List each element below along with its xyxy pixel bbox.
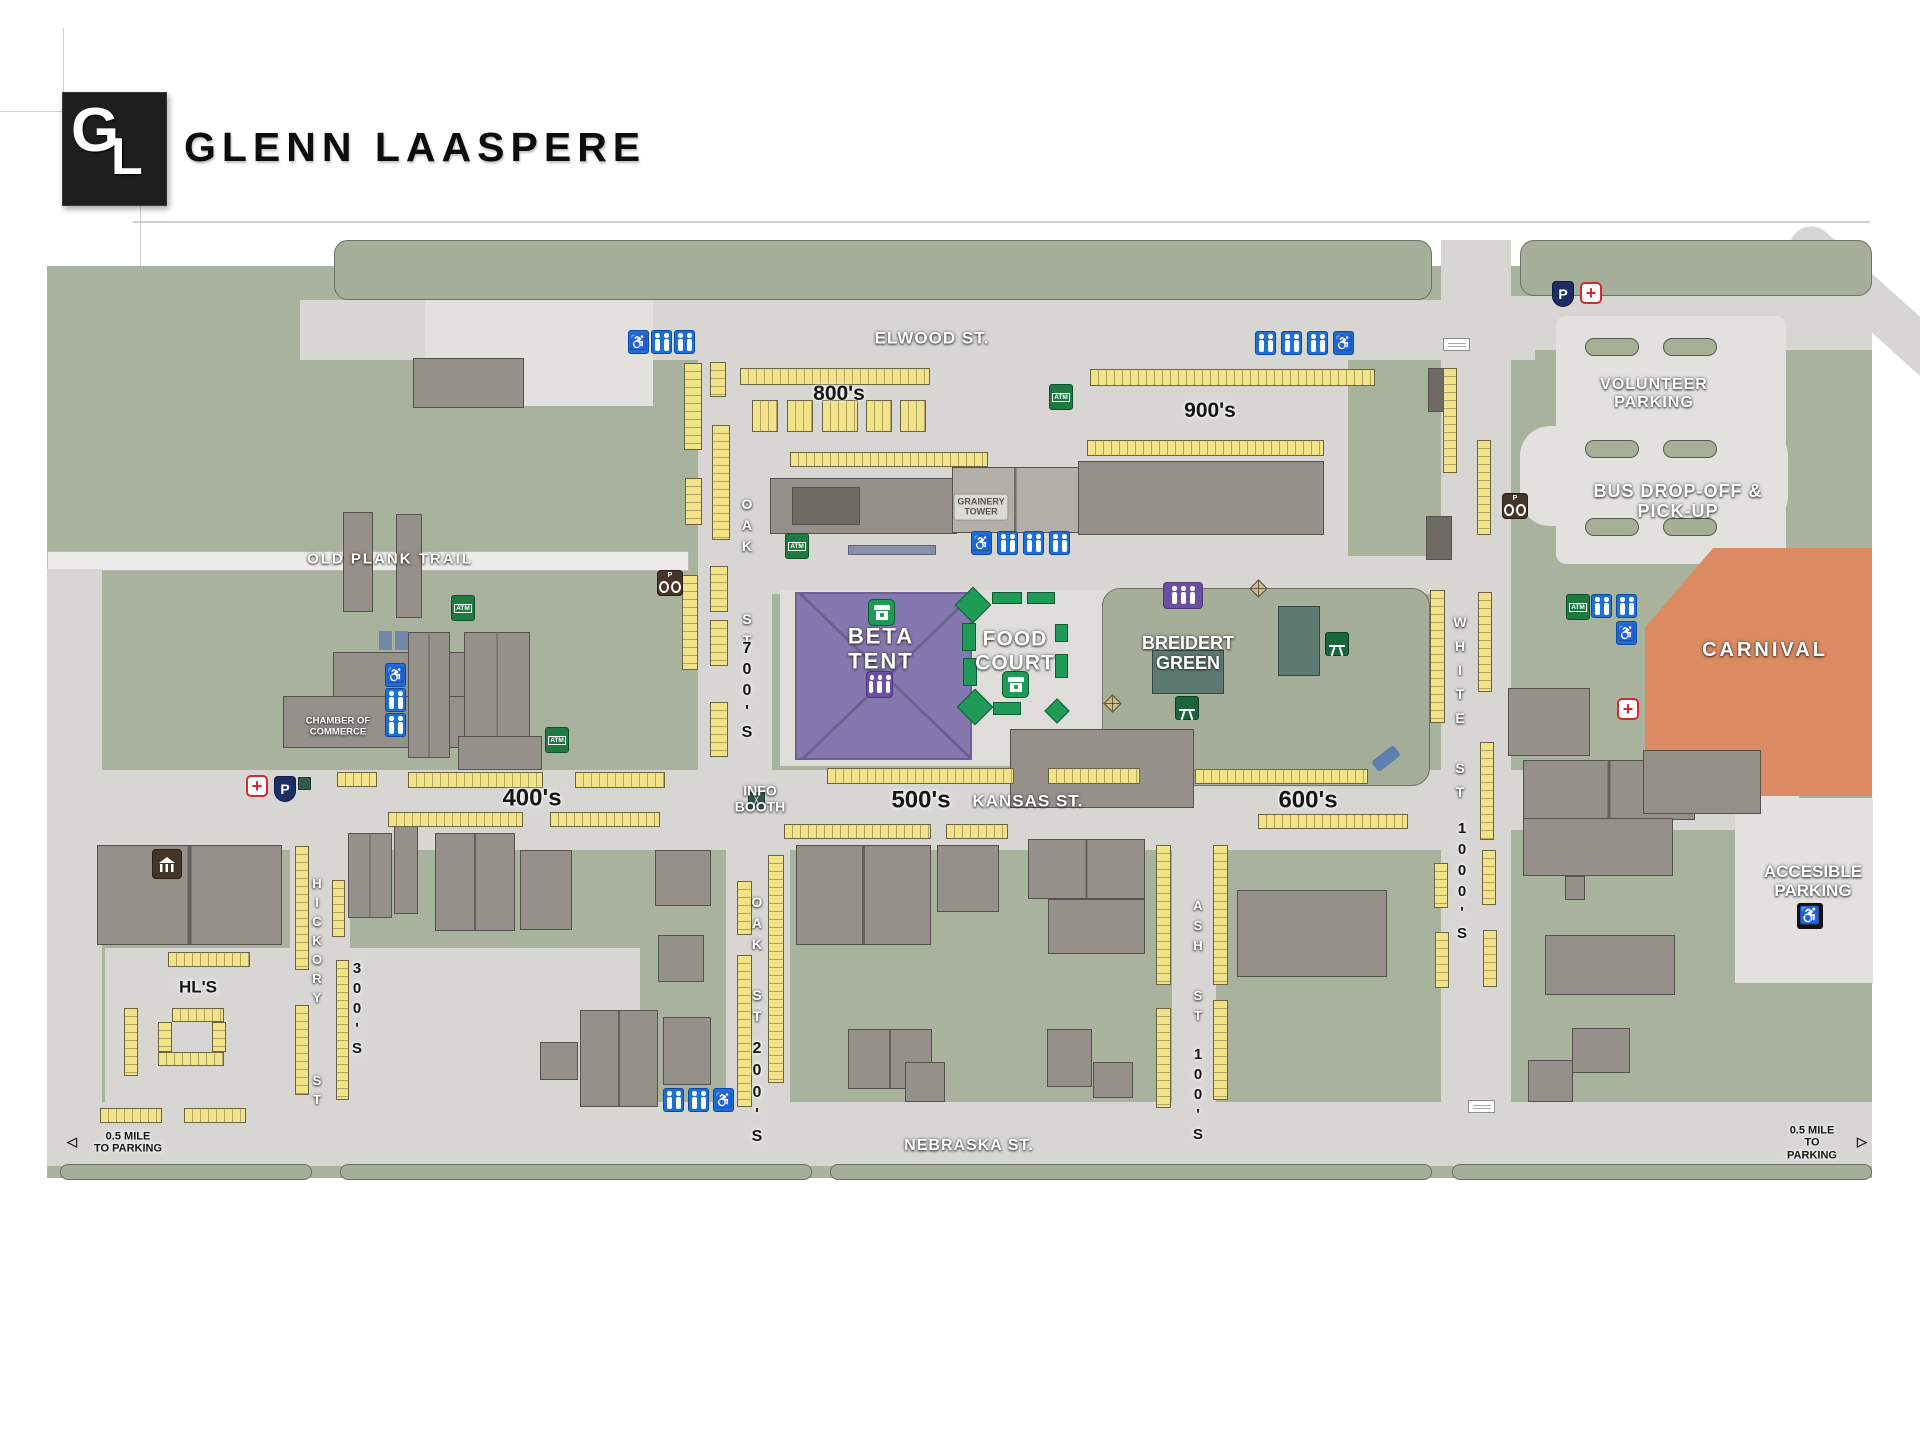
parking-island xyxy=(1585,440,1639,458)
building xyxy=(663,1017,711,1085)
building xyxy=(1426,516,1452,560)
vendor-booth-row xyxy=(710,566,728,612)
building xyxy=(1643,750,1761,814)
restroom-icon xyxy=(1049,531,1070,555)
parking-icon: P xyxy=(274,776,296,802)
direction-arrow-left: ◁ xyxy=(64,1134,80,1150)
marker-square xyxy=(298,777,311,790)
vendor-booth-row xyxy=(784,824,931,839)
vendor-booth-row xyxy=(337,772,377,787)
vendor-booth-row xyxy=(158,1022,172,1052)
vendor-booth-row xyxy=(712,425,730,540)
building xyxy=(1028,839,1145,899)
map-sign xyxy=(1468,1100,1495,1113)
atm-icon: ATM xyxy=(451,595,475,621)
building xyxy=(1523,818,1673,876)
vendor-booth-row xyxy=(1087,440,1324,456)
vendor-booth-row xyxy=(737,881,752,935)
restroom-icon xyxy=(1591,594,1612,618)
parking-island xyxy=(1585,338,1639,356)
breidert-green-label: BREIDERT GREEN xyxy=(1142,633,1234,673)
parking-icon: P xyxy=(1552,281,1574,307)
building xyxy=(348,833,392,918)
building xyxy=(1565,876,1585,900)
kansas-st-label: KANSAS ST. xyxy=(972,791,1083,810)
vendor-booth-row xyxy=(158,1052,224,1066)
vendor-booth-row xyxy=(682,575,698,670)
vendor-booth-row xyxy=(295,846,309,970)
carnival-label: CARNIVAL xyxy=(1702,639,1828,661)
restroom-icon xyxy=(1616,594,1637,618)
atm-icon: ATM xyxy=(785,533,809,559)
vendor-booth-row xyxy=(684,363,702,450)
vendor-booth-row xyxy=(1478,592,1492,692)
building xyxy=(1048,899,1145,954)
food-stall xyxy=(962,623,976,651)
building xyxy=(580,1010,658,1107)
picnic-area-icon xyxy=(1175,696,1199,720)
vendor-booth-row xyxy=(172,1008,224,1022)
accessible-icon: ♿ xyxy=(1616,621,1637,645)
vendor-booth-row xyxy=(710,362,726,397)
accessible-icon: ♿ xyxy=(628,330,649,354)
south-edge-green-3 xyxy=(830,1164,1432,1180)
vendor-stand-icon xyxy=(1002,671,1029,698)
logo-drop-line xyxy=(140,204,141,266)
mile-to-parking-right-label: 0.5 MILE TO PARKING xyxy=(1782,1125,1842,1162)
section-700s-label: 700'S xyxy=(742,640,753,745)
atm-icon: ATM xyxy=(1049,384,1073,410)
building xyxy=(1237,890,1387,977)
first-aid-icon: + xyxy=(1617,698,1639,720)
vendor-booth-row xyxy=(1482,850,1496,905)
building xyxy=(1545,935,1675,995)
vendor-booth-row xyxy=(900,400,926,432)
section-200s-label: 200'S xyxy=(752,1040,763,1150)
museum-icon xyxy=(152,849,182,879)
blue-markers xyxy=(379,631,408,650)
direction-arrow-right: ▷ xyxy=(1854,1134,1870,1150)
vendor-booth-row xyxy=(1156,1008,1171,1108)
bike-parking-icon: P xyxy=(1502,493,1528,519)
food-stall xyxy=(992,592,1022,604)
page-title: GLENN LAASPERE xyxy=(184,124,646,171)
section-1000s-label: 1000'S xyxy=(1457,820,1467,946)
food-stall xyxy=(1027,592,1055,604)
logo: G L xyxy=(62,92,167,206)
beta-tent-label: BETA TENT xyxy=(848,624,914,673)
bus-drop-off-label: BUS DROP-OFF & PICK-UP xyxy=(1581,481,1775,521)
vendor-booth-row xyxy=(1090,369,1375,386)
restroom-icon xyxy=(663,1088,684,1112)
section-800s-label: 800's xyxy=(813,382,865,406)
crop-mark-vertical xyxy=(63,28,64,92)
vendor-booth-row xyxy=(787,400,813,432)
restroom-icon xyxy=(1255,331,1276,355)
first-aid-icon: + xyxy=(246,775,268,797)
building xyxy=(905,1062,945,1102)
section-100s-label: 100'S xyxy=(1193,1046,1203,1146)
restroom-icon xyxy=(674,330,695,354)
restroom-icon xyxy=(688,1088,709,1112)
accessible-icon: ♿ xyxy=(1333,331,1354,355)
atm-icon: ATM xyxy=(545,727,569,753)
vendor-booth-row xyxy=(575,772,665,788)
vendor-booth-row xyxy=(1048,768,1140,784)
vendor-booth-row xyxy=(752,400,778,432)
accessible-parking-icon: ♿ xyxy=(1797,903,1823,929)
vendor-booth-row xyxy=(768,855,784,1083)
vendor-booth-row xyxy=(1434,863,1448,908)
oak-st-south-label: OAKST xyxy=(752,894,763,1029)
vendor-booth-row xyxy=(336,960,349,1100)
left-edge-road xyxy=(47,569,102,1166)
vendor-booth-row xyxy=(1213,845,1228,985)
accessible-icon: ♿ xyxy=(385,663,406,687)
map-sign xyxy=(1443,338,1470,351)
tables-row xyxy=(848,545,936,555)
info-booth-label: INFO BOOTH xyxy=(735,783,786,814)
festival-map: ♿♿♿♿♿ATM♿ATMATMATMATM+++PPPP╳♿◁▷ELWOOD S… xyxy=(47,266,1872,1178)
elwood-st-label: ELWOOD ST. xyxy=(875,328,990,347)
vendor-booth-row xyxy=(100,1108,162,1123)
building xyxy=(796,845,931,945)
hls-label: HL'S xyxy=(179,977,217,996)
vendor-booth-row xyxy=(710,702,728,757)
restroom-icon xyxy=(1307,331,1328,355)
vendor-booth-row xyxy=(1156,845,1171,985)
vendor-booth-row xyxy=(1435,932,1449,988)
section-500s-label: 500's xyxy=(891,788,950,815)
vendor-booth-row xyxy=(827,768,1014,784)
vendor-booth-row xyxy=(295,1005,309,1095)
vendor-booth-row xyxy=(168,952,250,967)
vendor-booth-row xyxy=(1480,742,1494,840)
food-court-label: FOOD COURT xyxy=(975,627,1055,674)
vendor-booth-row xyxy=(1195,769,1368,784)
building xyxy=(394,824,418,914)
performers-icon xyxy=(1163,582,1203,609)
vendor-booth-row xyxy=(1477,440,1491,535)
building xyxy=(1528,1060,1573,1102)
section-900s-label: 900's xyxy=(1184,399,1236,423)
nebraska-st-label: NEBRASKA ST. xyxy=(904,1137,1034,1155)
bike-parking-icon: P xyxy=(657,570,683,596)
vendor-booth-row xyxy=(388,812,523,827)
vendor-booth-row xyxy=(685,478,702,525)
vendor-booth-row xyxy=(1483,930,1497,987)
building xyxy=(937,845,999,912)
building xyxy=(520,850,572,930)
old-plank-trail-label: OLD PLANK TRAIL xyxy=(307,552,473,569)
accessible-parking-label: ACCESIBLE PARKING xyxy=(1764,862,1862,900)
vendor-booth-row xyxy=(1213,1000,1228,1100)
vendor-booth-row xyxy=(124,1008,138,1076)
vendor-booth-row xyxy=(790,452,988,467)
north-green-strip xyxy=(334,240,1432,300)
food-stall xyxy=(1055,624,1068,642)
section-300s-label: 300'S xyxy=(352,960,362,1060)
vendor-booth-row xyxy=(212,1022,226,1052)
south-edge-green-4 xyxy=(1452,1164,1872,1180)
restroom-icon xyxy=(997,531,1018,555)
building xyxy=(792,487,860,525)
logo-letter-l: L xyxy=(111,127,143,187)
restroom-icon xyxy=(385,713,406,737)
grainery-tower-label: GRAINERY TOWER xyxy=(953,494,1008,521)
building xyxy=(1078,461,1324,535)
building xyxy=(540,1042,578,1080)
section-600s-label: 600's xyxy=(1278,788,1337,815)
building xyxy=(435,833,515,931)
white-st-label: WHITEST xyxy=(1453,614,1466,808)
volunteer-parking-label: VOLUNTEER PARKING xyxy=(1600,376,1708,412)
vendor-stand-icon xyxy=(868,599,895,626)
parking-island xyxy=(1663,338,1717,356)
building xyxy=(1093,1062,1133,1098)
hl-plaza xyxy=(105,948,640,1106)
restroom-icon xyxy=(1281,331,1302,355)
accessible-icon: ♿ xyxy=(713,1088,734,1112)
parking-island xyxy=(1663,440,1717,458)
vendor-booth-row xyxy=(550,812,660,827)
first-aid-icon: + xyxy=(1580,282,1602,304)
header-divider xyxy=(133,221,1870,223)
south-edge-green-2 xyxy=(340,1164,812,1180)
chamber-of-commerce-label: CHAMBER OF COMMERCE xyxy=(306,716,370,737)
restroom-icon xyxy=(1023,531,1044,555)
accessible-icon: ♿ xyxy=(971,531,992,555)
ash-st-label: ASHST xyxy=(1193,898,1202,1028)
vendor-booth-row xyxy=(710,620,728,666)
building xyxy=(1508,688,1590,756)
vendor-booth-row xyxy=(184,1108,246,1123)
vendor-booth-row xyxy=(946,824,1008,839)
food-stall xyxy=(1055,654,1068,678)
restroom-icon xyxy=(385,688,406,712)
food-stall xyxy=(993,702,1021,715)
vendor-booth-row xyxy=(1258,814,1408,829)
building xyxy=(1428,368,1444,412)
building xyxy=(1278,606,1320,676)
building xyxy=(97,845,282,945)
building xyxy=(1047,1029,1092,1087)
vendor-booth-row xyxy=(1443,368,1457,473)
oak-st-north-label: OAKST xyxy=(742,496,753,653)
crop-mark-horizontal xyxy=(0,111,62,112)
building xyxy=(658,935,704,982)
building xyxy=(408,632,450,758)
south-edge-green-1 xyxy=(60,1164,312,1180)
vendor-booth-row xyxy=(1430,590,1445,723)
vendor-booth-row xyxy=(332,880,345,937)
section-400s-label: 400's xyxy=(502,786,561,813)
atm-icon: ATM xyxy=(1566,594,1590,620)
vendor-booth-row xyxy=(866,400,892,432)
family-area-icon xyxy=(866,671,893,698)
mile-to-parking-left-label: 0.5 MILE TO PARKING xyxy=(94,1131,162,1156)
building xyxy=(458,736,542,770)
building xyxy=(655,850,711,906)
vendor-booth-row xyxy=(737,955,752,1107)
building xyxy=(413,358,524,408)
picnic-area-icon xyxy=(1325,632,1349,656)
restroom-icon xyxy=(651,330,672,354)
hickory-st-label: HICKORYST xyxy=(312,876,322,1111)
page: G L GLENN LAASPERE ♿♿♿♿♿ATM♿ATMATMATMATM… xyxy=(0,0,1920,1440)
building xyxy=(1572,1028,1630,1073)
building xyxy=(464,632,530,738)
